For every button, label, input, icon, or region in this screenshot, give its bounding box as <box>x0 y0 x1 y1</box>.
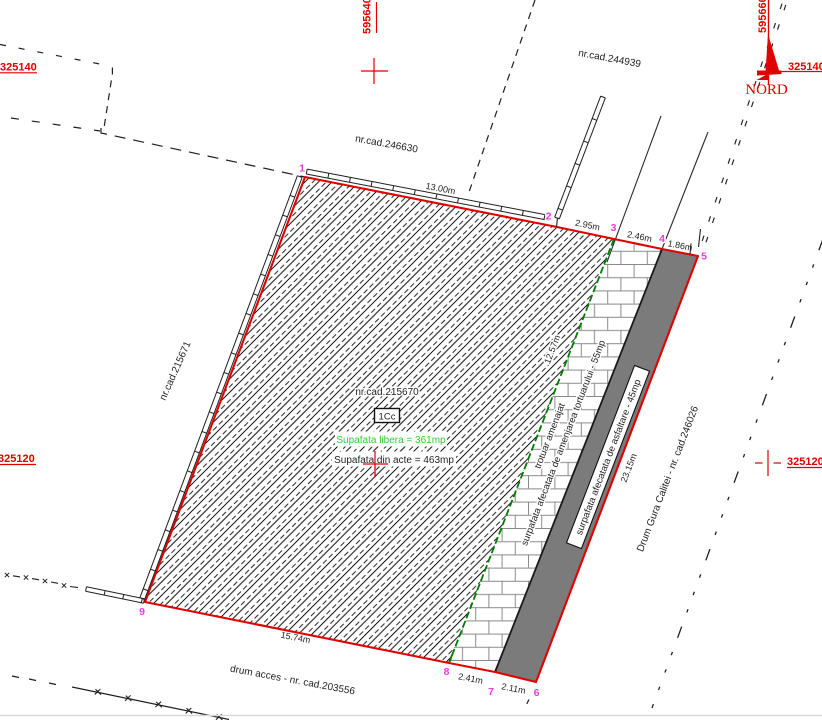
svg-text:9: 9 <box>139 606 145 618</box>
svg-text:5: 5 <box>701 251 707 263</box>
svg-text:2: 2 <box>546 211 552 223</box>
svg-text:Supafata din acte = 463mp: Supafata din acte = 463mp <box>334 455 454 466</box>
svg-text:325120: 325120 <box>787 456 822 468</box>
svg-text:595640: 595640 <box>362 0 374 34</box>
svg-text:1: 1 <box>299 163 305 175</box>
svg-text:3: 3 <box>611 222 617 234</box>
svg-text:325120: 325120 <box>0 453 35 465</box>
svg-text:6: 6 <box>534 687 540 699</box>
svg-text:325140: 325140 <box>0 62 37 74</box>
svg-text:nr.cad.215670: nr.cad.215670 <box>355 387 419 398</box>
svg-text:NORD: NORD <box>745 82 788 98</box>
svg-text:595660: 595660 <box>757 0 769 33</box>
svg-text:1Cc: 1Cc <box>379 412 396 423</box>
svg-text:7: 7 <box>488 686 494 698</box>
svg-text:8: 8 <box>444 666 450 678</box>
svg-text:Supafata libera = 361mp: Supafata libera = 361mp <box>336 435 446 446</box>
svg-text:4: 4 <box>659 233 665 245</box>
